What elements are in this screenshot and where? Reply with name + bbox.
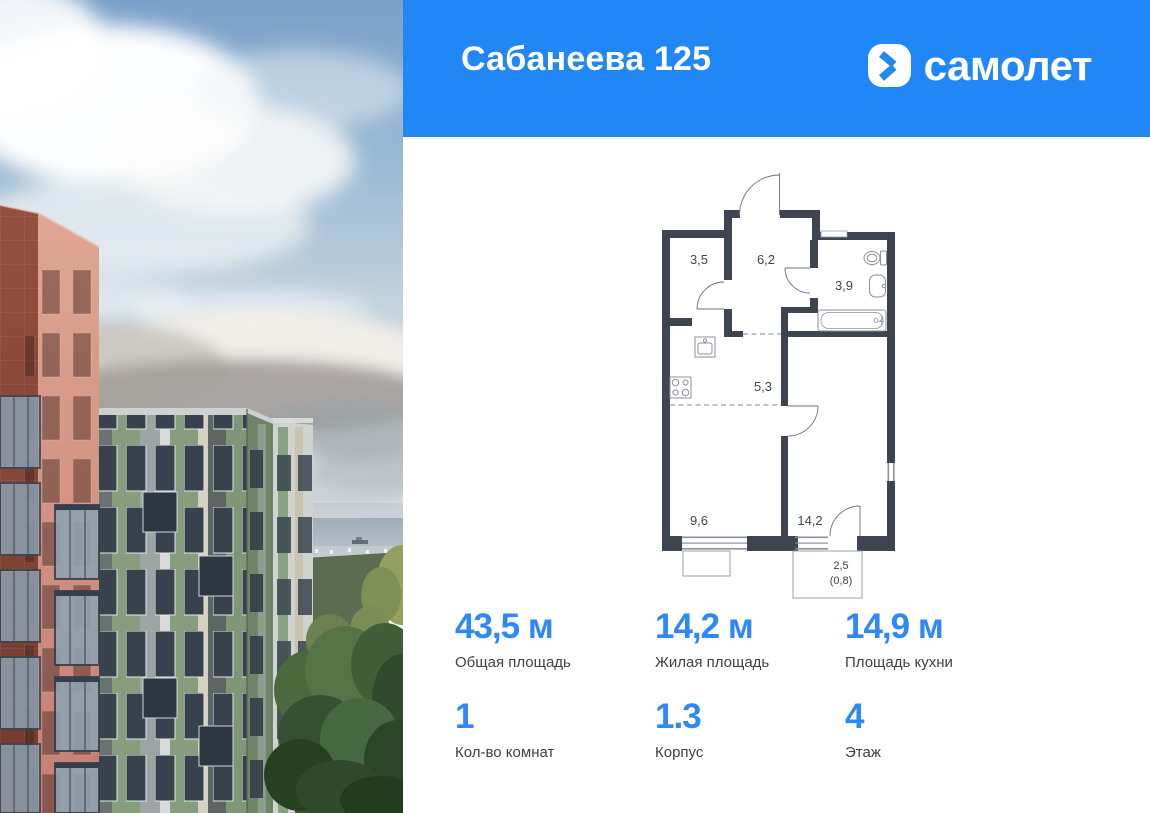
stat-kitchen-area: 14,9 м Площадь кухни — [845, 608, 1035, 671]
complex-title: Сабанеева 125 — [461, 40, 711, 79]
samolet-logo: самолет — [868, 44, 1092, 87]
stat-floor-label: Этаж — [845, 744, 1035, 761]
living-room-door — [788, 406, 818, 436]
samolet-logo-text: самолет — [924, 44, 1092, 87]
header: Сабанеева 125 самолет — [403, 0, 1150, 137]
balcony-area-reduced: (0,8) — [830, 575, 853, 587]
terracotta-building — [0, 205, 99, 813]
room-area-kitchen: 5,3 — [754, 379, 772, 394]
stat-kitchen-area-value: 14,9 м — [845, 608, 1035, 646]
glass-balconies-left — [0, 396, 40, 813]
stat-rooms-label: Кол-во комнат — [455, 744, 645, 761]
room-area-living: 14,2 — [797, 513, 822, 528]
balcony-area: 2,5 — [833, 560, 848, 572]
toilet-icon — [864, 251, 887, 265]
room-area-bedroom: 9,6 — [690, 513, 708, 528]
listing-card: Сабанеева 125 самолет — [0, 0, 1150, 813]
floor-plan: 3,5 6,2 3,9 5,3 9,6 14,2 2,5 (0,8) — [640, 155, 950, 615]
stat-floor-value: 4 — [845, 698, 1035, 736]
green-tower — [93, 408, 248, 813]
stat-kitchen-area-label: Площадь кухни — [845, 654, 1035, 671]
stat-building-label: Корпус — [655, 744, 845, 761]
stat-total-area-label: Общая площадь — [455, 654, 645, 671]
washbasin-icon — [870, 275, 886, 297]
bathtub-icon — [818, 310, 886, 331]
bathroom-door — [785, 268, 810, 293]
green-tower-side — [247, 408, 273, 813]
stat-rooms: 1 Кол-во комнат — [455, 698, 645, 761]
entrance-door — [740, 173, 780, 215]
stat-living-area: 14,2 м Жилая площадь — [655, 608, 845, 671]
stat-living-area-value: 14,2 м — [655, 608, 845, 646]
kitchen-sink-icon — [695, 337, 715, 357]
room-area-wardrobe: 3,5 — [690, 252, 708, 267]
stove-icon — [670, 377, 691, 398]
vent-shaft — [821, 231, 847, 237]
stat-total-area: 43,5 м Общая площадь — [455, 608, 645, 671]
stat-living-area-label: Жилая площадь — [655, 654, 845, 671]
stat-rooms-value: 1 — [455, 698, 645, 736]
stat-total-area-value: 43,5 м — [455, 608, 645, 646]
samolet-logo-icon — [868, 44, 911, 87]
fixtures — [670, 251, 887, 398]
stat-building: 1.3 Корпус — [655, 698, 845, 761]
room-area-bathroom: 3,9 — [835, 278, 853, 293]
stat-building-value: 1.3 — [655, 698, 845, 736]
door-swings — [697, 173, 860, 536]
glass-balconies-right — [55, 505, 99, 813]
building-photo — [0, 0, 403, 813]
room-area-hall: 6,2 — [757, 252, 775, 267]
balcony-door — [830, 506, 860, 536]
wardrobe-door — [697, 282, 724, 309]
stat-floor: 4 Этаж — [845, 698, 1035, 761]
bay-window — [683, 551, 730, 576]
